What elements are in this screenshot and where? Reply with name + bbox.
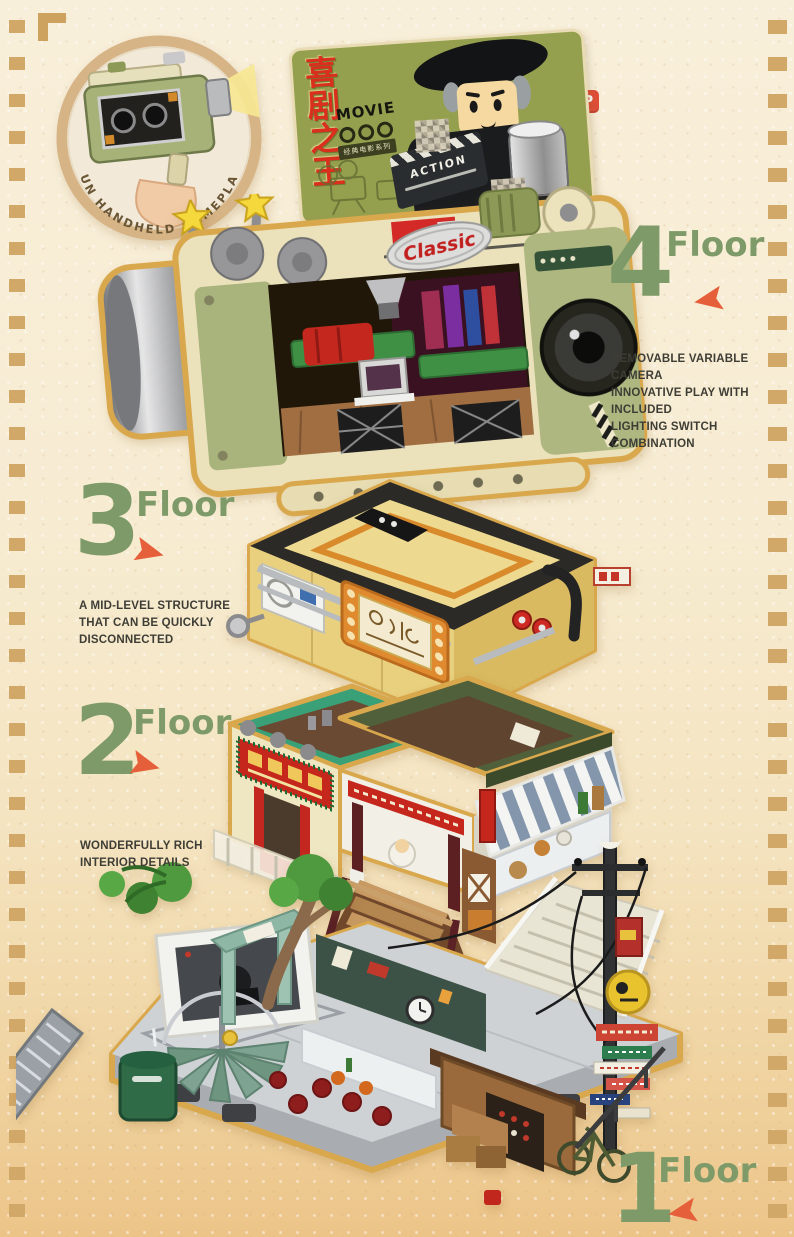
- floor-1-word: Floor: [658, 1154, 756, 1188]
- floor-3-description: A MID-LEVEL STRUCTURE THAT CAN BE QUICKL…: [79, 598, 259, 649]
- floor-4-word: Floor: [666, 228, 764, 262]
- floor-3-number: 3: [74, 482, 141, 561]
- side-sign: [594, 568, 630, 585]
- floor-4-number: 4: [607, 224, 674, 303]
- camera-interior-cutaway: [268, 263, 534, 458]
- pole-yellow-sign: [607, 971, 649, 1013]
- poster-page: TOP FUN HANDHELD GAMEPLAY 喜剧之王 MOVIE: [0, 0, 794, 1237]
- mailbox: [120, 1051, 176, 1120]
- yellow-flower: [223, 1031, 237, 1045]
- floor-2-description: WONDERFULLY RICH INTERIOR DETAILS: [80, 838, 260, 872]
- film-strip-right-icon: [768, 20, 787, 1227]
- escalator: [16, 1010, 82, 1164]
- hydrant-piece: [484, 1190, 501, 1205]
- floor-3-word: Floor: [136, 488, 234, 522]
- floor-4-arrow-icon: [692, 286, 724, 314]
- mosaic-censor: [415, 119, 451, 153]
- floor-4-description: REMOVABLE VARIABLE CAMERA INNOVATIVE PLA…: [611, 351, 791, 453]
- red-vertical-banner: [480, 790, 495, 842]
- floor-2-number: 2: [74, 702, 141, 781]
- floor-1-street-model: [16, 842, 706, 1237]
- floor-2-word: Floor: [133, 706, 231, 740]
